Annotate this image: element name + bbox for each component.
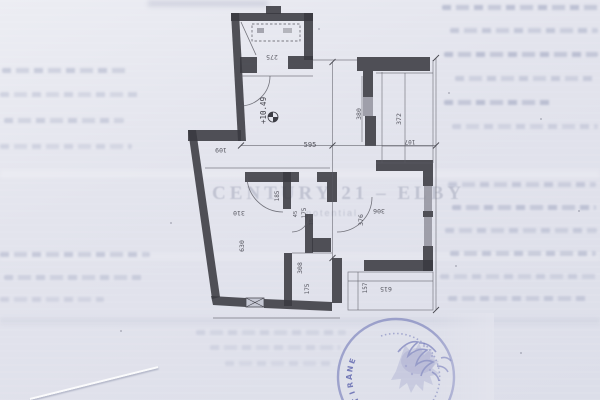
dimension-label: 380 (355, 108, 363, 120)
dimension-label: 306 (373, 207, 385, 215)
dimension-label: 157 (362, 282, 369, 293)
level-mark-text: +10.49 (259, 97, 268, 124)
dimension-label: 310 (233, 209, 245, 217)
dimension-label: 109 (215, 146, 227, 154)
stamp-arc-text: TIRANE (345, 357, 361, 400)
stamp: TIRANE (338, 313, 494, 400)
dimension-label: 376 (357, 214, 365, 226)
dimension-label: 372 (395, 113, 403, 125)
dimension-label: 107 (404, 138, 415, 145)
stamp-ink-fade (432, 313, 494, 400)
dimension-label: 275 (266, 53, 278, 61)
dimension-label: 45 (293, 211, 299, 218)
dimension-label: 175 (304, 283, 311, 294)
dimension-label: 175 (301, 207, 308, 218)
floor-plan-drawing: +10.49 275595380372107109185310630451751… (0, 0, 600, 400)
level-mark: +10.49 (259, 97, 278, 124)
window-symbol (246, 298, 264, 307)
stamp-arc-letter: E (347, 357, 357, 365)
stamp-arc-letter: I (348, 390, 357, 396)
dimension-label: 15 (309, 219, 315, 226)
level-symbol-icon (268, 112, 278, 122)
stamp-arc-letter: N (345, 365, 355, 373)
dashed-fixture-box (252, 24, 300, 41)
scanned-floor-plan-page: CENTURY 21 – ELBY potential (0, 0, 600, 400)
stamp-arc-letter: A (345, 374, 354, 380)
dimension-label: 595 (304, 141, 317, 149)
walls-layer (188, 6, 433, 311)
stamp-arc-letter: T (350, 395, 361, 400)
dimension-label: 630 (238, 240, 246, 252)
dimension-label: 308 (296, 262, 304, 274)
dimension-label: 615 (380, 285, 392, 293)
dimension-label: 185 (274, 190, 281, 201)
stamp-arc-letter: R (345, 381, 355, 388)
